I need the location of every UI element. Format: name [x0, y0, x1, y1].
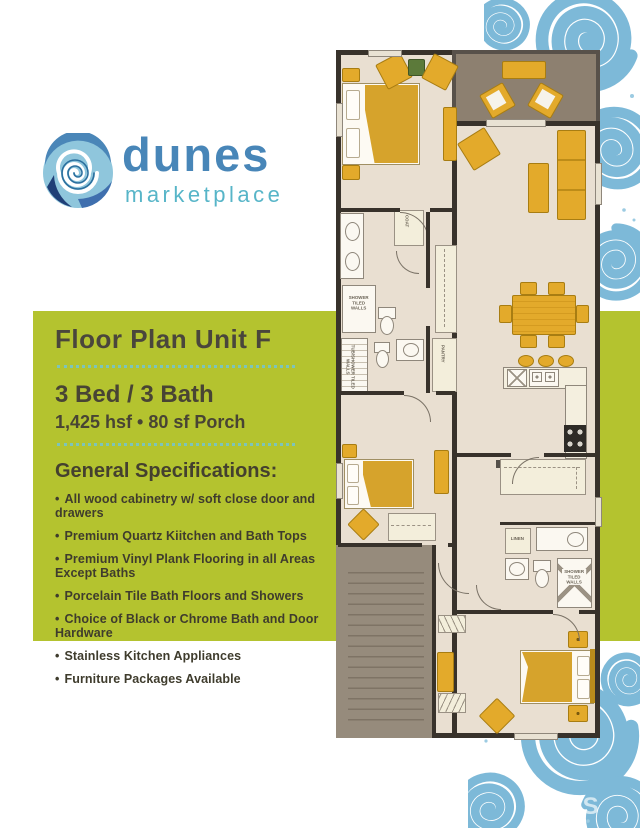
hall-wardrobe	[435, 245, 457, 333]
nightstand	[342, 68, 360, 82]
pantry-label: PANTRY	[440, 345, 445, 363]
dunes-marketplace-logo: dunes marketplace	[42, 133, 116, 218]
shower-1-label: SHOWER TILED WALLS	[346, 295, 371, 311]
dresser	[437, 652, 454, 692]
logo-name: dunes	[122, 127, 270, 182]
linen-label: LINEN	[508, 536, 527, 541]
toilet-2-bowl	[376, 350, 389, 368]
spec-item: •All wood cabinetry w/ soft close door a…	[55, 492, 345, 520]
spec-item: •Premium Vinyl Plank Flooring in all Are…	[55, 552, 345, 580]
stair-steps	[348, 563, 424, 721]
dishwasher	[507, 369, 527, 387]
window	[336, 463, 343, 499]
tub-shower-label: TUB/SHOWER TILED WALLS	[345, 342, 356, 392]
coat-label: COAT	[404, 215, 409, 227]
square-footage: 1,425 hsf • 80 sf Porch	[55, 412, 345, 433]
dining-chair	[548, 335, 565, 348]
mls-watermark: MLS	[540, 793, 603, 821]
bedroom-2-closet	[388, 513, 436, 541]
dining-chair	[576, 305, 589, 323]
spec-item: •Choice of Black or Chrome Bath and Door…	[55, 612, 345, 640]
toilet-1-bowl	[380, 316, 394, 335]
porch-slider-door	[486, 119, 546, 127]
sink-basin	[505, 558, 529, 580]
dotted-divider-top	[57, 365, 295, 368]
master-closet	[438, 693, 466, 713]
master-vanity	[536, 527, 588, 551]
vanity-2	[396, 339, 424, 361]
spec-item: •Stainless Kitchen Appliances	[55, 649, 345, 663]
specs-list: •All wood cabinetry w/ soft close door a…	[55, 492, 345, 686]
wave-circle-logo-icon	[42, 133, 116, 213]
nightstand	[342, 165, 360, 180]
floor-plan-title: Floor Plan Unit F	[55, 324, 345, 355]
master-bed	[520, 650, 594, 704]
logo-tagline: marketplace	[125, 182, 283, 208]
window	[514, 733, 558, 740]
bar-stool	[518, 355, 534, 367]
bar-stool	[558, 355, 574, 367]
dining-chair	[499, 305, 512, 323]
shower-2-label: SHOWER TILED WALLS	[562, 569, 586, 585]
window	[336, 103, 343, 137]
dining-chair	[520, 335, 537, 348]
window	[595, 497, 602, 527]
bed-1	[342, 83, 420, 165]
specs-heading: General Specifications:	[55, 460, 345, 483]
bench	[443, 107, 457, 161]
dotted-divider-bottom	[57, 443, 295, 446]
porch-loveseat	[502, 61, 546, 79]
stove	[564, 425, 586, 452]
bed-2	[344, 459, 414, 509]
sofa	[557, 130, 586, 220]
nightstand	[342, 444, 357, 458]
nightstand	[568, 705, 588, 722]
flyer-page: { "logo": { "name": "dunes", "tagline": …	[0, 0, 640, 828]
window	[368, 50, 402, 57]
dining-table	[512, 295, 576, 335]
kitchen-sink	[529, 369, 559, 387]
double-vanity	[340, 213, 364, 279]
spec-item: •Premium Quartz Kiitchen and Bath Tops	[55, 529, 345, 543]
window	[595, 163, 602, 205]
master-closet	[438, 615, 466, 633]
bench	[434, 450, 449, 494]
coffee-table	[528, 163, 549, 213]
beds-baths: 3 Bed / 3 Bath	[55, 381, 345, 409]
spec-item: •Furniture Packages Available	[55, 672, 345, 686]
toilet-3-bowl	[535, 569, 549, 588]
dining-chair	[548, 282, 565, 295]
dining-chair	[520, 282, 537, 295]
floor-plan-unit-f: COAT SHOWER TILED WALLS TUB/SHOWER TILED…	[336, 45, 602, 745]
spec-item: •Porcelain Tile Bath Floors and Showers	[55, 589, 345, 603]
bar-stool	[538, 355, 554, 367]
